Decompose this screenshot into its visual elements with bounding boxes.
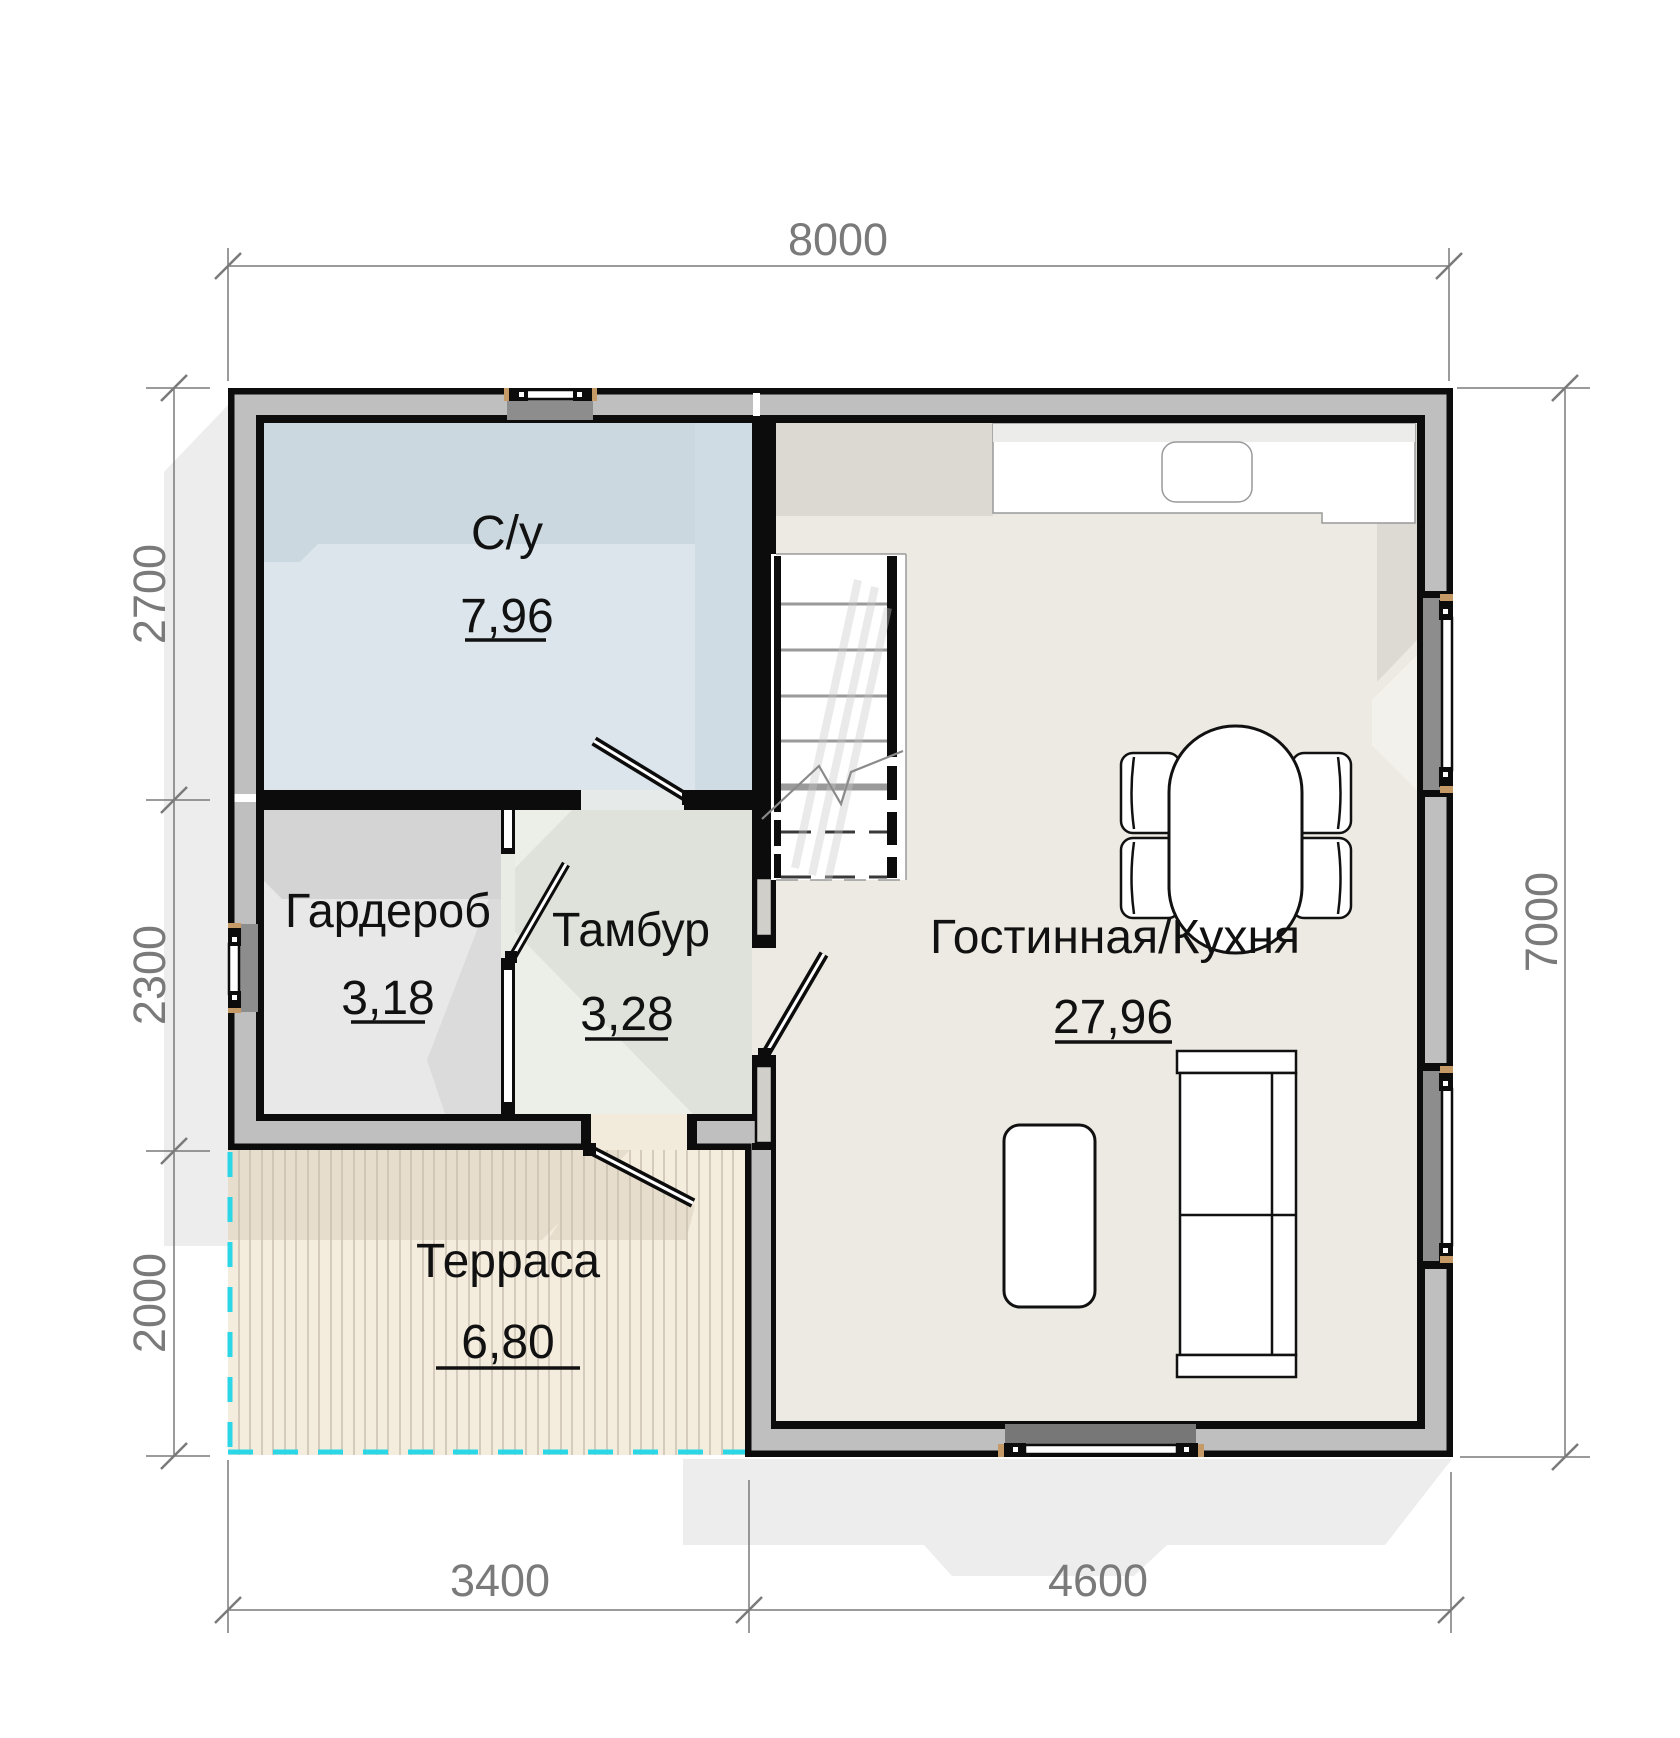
svg-text:2000: 2000 (124, 1253, 175, 1353)
svg-text:3,18: 3,18 (341, 972, 434, 1025)
svg-text:С/у: С/у (471, 507, 543, 560)
svg-text:27,96: 27,96 (1053, 991, 1173, 1044)
svg-text:3,28: 3,28 (580, 988, 673, 1041)
svg-text:2700: 2700 (124, 544, 175, 644)
svg-text:Терраса: Терраса (416, 1235, 600, 1288)
svg-text:4600: 4600 (1048, 1555, 1148, 1606)
svg-text:2300: 2300 (124, 925, 175, 1025)
svg-text:Гостинная/Кухня: Гостинная/Кухня (930, 911, 1300, 964)
svg-text:7,96: 7,96 (460, 590, 553, 643)
svg-text:6,80: 6,80 (461, 1316, 554, 1369)
svg-text:7000: 7000 (1516, 872, 1567, 972)
svg-text:3400: 3400 (450, 1555, 550, 1606)
svg-text:Гардероб: Гардероб (285, 885, 491, 938)
svg-text:8000: 8000 (788, 214, 888, 265)
svg-text:Тамбур: Тамбур (552, 904, 710, 957)
